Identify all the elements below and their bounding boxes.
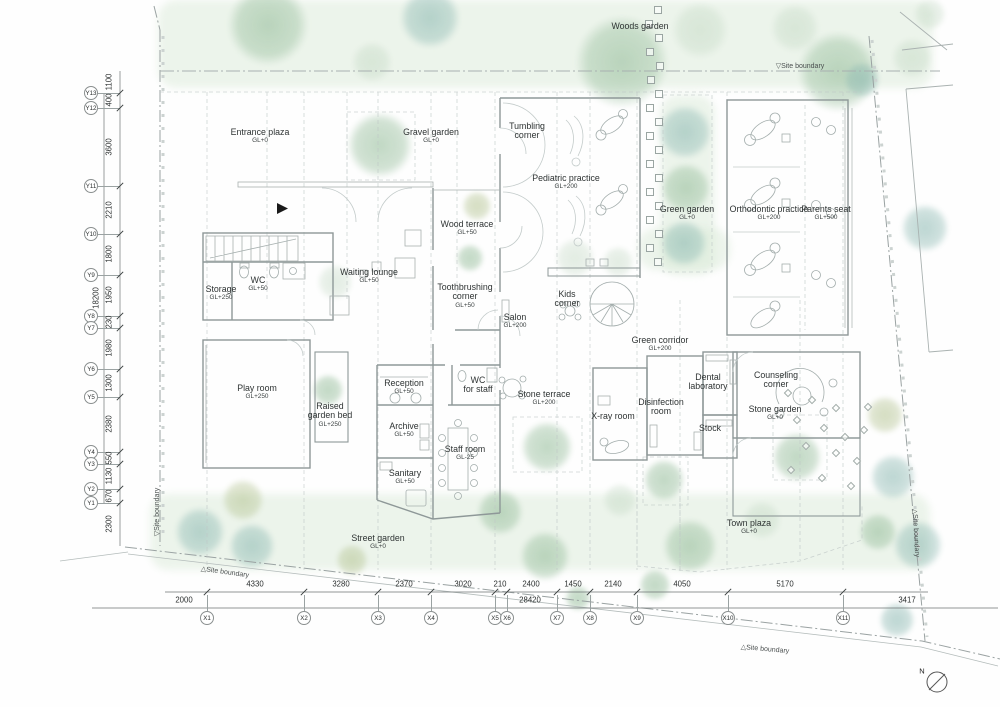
stepping-stone [646, 244, 654, 252]
room-gl-level: GL+0 [660, 214, 714, 223]
grid-bubble-y12: Y12 [84, 101, 98, 115]
room-name: Orthodontic practice [730, 205, 809, 214]
room-label-archive: ArchiveGL+50 [389, 422, 418, 440]
room-label-disinfection-room: Disinfectionroom [638, 398, 683, 417]
grid-leader [495, 595, 496, 611]
grid-leader [378, 595, 379, 611]
room-gl-level: GL+0 [231, 137, 290, 146]
room-name: Reception [384, 379, 424, 388]
x-dimension: 1450 [564, 580, 581, 589]
grid-bubble-y2: Y2 [84, 482, 98, 496]
grid-leader [98, 234, 120, 235]
grid-leader [304, 595, 305, 611]
room-name: Storage [206, 285, 237, 294]
room-name: Staff room [445, 445, 485, 454]
grid-leader [557, 595, 558, 611]
x-dimension-total: 2000 [175, 596, 192, 605]
room-label-green-corridor: Green corridorGL+200 [632, 336, 689, 354]
y-dimension: 670 [105, 489, 114, 502]
stepping-stone [655, 34, 663, 42]
x-dimension-total: 28420 [519, 596, 541, 605]
floor-plan: Woods gardenEntrance plazaGL+0Gravel gar… [0, 0, 1000, 707]
room-name: Green corridor [632, 336, 689, 345]
room-label-wood-terrace: Wood terraceGL+50 [441, 220, 494, 238]
room-label-play-room: Play roomGL+250 [237, 384, 277, 402]
room-name: Salon [504, 313, 527, 322]
dashed-grid [160, 92, 862, 572]
stepping-stone [646, 48, 654, 56]
room-name: room [638, 407, 683, 416]
north-arrow-icon [927, 672, 947, 692]
room-label-salon: SalonGL+200 [504, 313, 527, 331]
room-name: Pediatric practice [532, 174, 599, 183]
room-label-woods-garden: Woods garden [611, 22, 668, 31]
room-label-gravel-garden: Gravel gardenGL+0 [403, 128, 459, 146]
x-dimension: 4330 [246, 580, 263, 589]
room-gl-level: GL+500 [801, 214, 850, 223]
spiral-stair [590, 282, 634, 326]
room-name: Street garden [351, 534, 404, 543]
room-gl-level: GL+0 [351, 543, 404, 552]
grid-leader [843, 595, 844, 611]
stepping-stone [655, 146, 663, 154]
y-dimension: 2300 [105, 515, 114, 532]
stepping-stone [656, 62, 664, 70]
grid-leader [637, 595, 638, 611]
grid-bubble-x4: X4 [424, 611, 438, 625]
grid-leader [98, 108, 120, 109]
room-gl-level: GL+200 [632, 345, 689, 354]
room-name: Stone garden [749, 405, 802, 414]
stepping-stone [655, 174, 663, 182]
room-gl-level: GL+0 [727, 528, 771, 537]
room-gl-level: GL+50 [340, 277, 398, 286]
room-gl-level: GL+200 [730, 214, 809, 223]
room-label-staff-room: Staff roomGL-25 [445, 445, 485, 463]
grid-bubble-y3: Y3 [84, 457, 98, 471]
grid-bubble-x8: X8 [583, 611, 597, 625]
grid-bubble-y7: Y7 [84, 321, 98, 335]
room-name: Stone terrace [518, 390, 571, 399]
plan-linework [0, 0, 1000, 707]
grid-bubble-x2: X2 [297, 611, 311, 625]
room-gl-level: GL+50 [389, 478, 421, 487]
room-name: corner [754, 380, 798, 389]
room-label-toothbrushing-corner: ToothbrushingcornerGL+50 [437, 283, 492, 310]
room-gl-level: GL+200 [504, 322, 527, 331]
stepping-stone [654, 6, 662, 14]
room-gl-level: GL+250 [308, 421, 353, 430]
north-label: N [919, 667, 924, 676]
y-dimension: 1300 [105, 374, 114, 391]
stepping-stone [646, 216, 654, 224]
x-dimension-total: 3417 [898, 596, 915, 605]
x-dimension: 3280 [332, 580, 349, 589]
room-label-orthodontic-practice: Orthodontic practiceGL+200 [730, 205, 809, 223]
room-name: corner [509, 131, 545, 140]
grid-leader [728, 595, 729, 611]
room-gl-level: GL+50 [389, 431, 418, 440]
room-name: Entrance plaza [231, 128, 290, 137]
y-dimension: 550 [105, 451, 114, 464]
stepping-stone [646, 188, 654, 196]
room-gl-level: GL+50 [248, 285, 267, 294]
parents-stools [812, 118, 836, 288]
room-label-counseling-corner: Counselingcorner [754, 371, 798, 390]
room-name: Stock [699, 424, 721, 433]
grid-leader [98, 503, 120, 504]
room-name: Woods garden [611, 22, 668, 31]
room-label-x-ray-room: X-ray room [591, 412, 635, 421]
room-gl-level: GL+250 [206, 294, 237, 303]
y-dimension: 400 [105, 93, 114, 106]
x-dimension: 3020 [454, 580, 471, 589]
grid-leader [431, 595, 432, 611]
y-dimension: 3600 [105, 138, 114, 155]
room-label-reception: ReceptionGL+50 [384, 379, 424, 397]
room-label-wc: WCGL+50 [248, 276, 267, 294]
room-label-street-garden: Street gardenGL+0 [351, 534, 404, 552]
room-name: corner [437, 292, 492, 301]
room-gl-level: GL+0 [403, 137, 459, 146]
x-dimension: 5170 [776, 580, 793, 589]
room-label-town-plaza: Town plazaGL+0 [727, 519, 771, 537]
y-dimension: 1130 [105, 468, 114, 485]
grid-bubble-x11: X11 [836, 611, 850, 625]
stepping-stone [647, 76, 655, 84]
room-label-storage: StorageGL+250 [206, 285, 237, 303]
stepping-stone [655, 118, 663, 126]
room-label-tumbling-corner: Tumblingcorner [509, 122, 545, 141]
grid-bubble-y6: Y6 [84, 362, 98, 376]
x-dimension: 210 [493, 580, 506, 589]
y-dimension: 230 [105, 315, 114, 328]
room-label-stock: Stock [699, 424, 721, 433]
grid-bubble-y1: Y1 [84, 496, 98, 510]
room-gl-level: GL+50 [437, 302, 492, 311]
grid-bubble-x1: X1 [200, 611, 214, 625]
y-dimension: 1950 [105, 286, 114, 303]
entrance-arrow-icon [277, 203, 288, 214]
room-label-pediatric-practice: Pediatric practiceGL+200 [532, 174, 599, 192]
grid-leader [98, 369, 120, 370]
room-name: Play room [237, 384, 277, 393]
x-dimension: 4050 [673, 580, 690, 589]
room-name: Sanitary [389, 469, 421, 478]
room-label-wc-for-staff: WCfor staff [463, 376, 492, 395]
room-label-raised-garden-bed: Raisedgarden bedGL+250 [308, 402, 353, 429]
y-dimension: 1800 [105, 245, 114, 262]
grid-bubble-x9: X9 [630, 611, 644, 625]
grid-bubble-y10: Y10 [84, 227, 98, 241]
room-name: Green garden [660, 205, 714, 214]
room-name: WC [248, 276, 267, 285]
site-boundary-top: ▽Site boundary [776, 62, 825, 70]
room-name: Gravel garden [403, 128, 459, 137]
room-name: Waiting lounge [340, 268, 398, 277]
room-label-sanitary: SanitaryGL+50 [389, 469, 421, 487]
room-name: Archive [389, 422, 418, 431]
room-name: X-ray room [591, 412, 635, 421]
room-name: Parents seat [801, 205, 850, 214]
room-label-stone-garden: Stone gardenGL+0 [749, 405, 802, 423]
grid-bubble-x3: X3 [371, 611, 385, 625]
room-name: laboratory [688, 382, 727, 391]
room-label-stone-terrace: Stone terraceGL+200 [518, 390, 571, 408]
room-label-kids-corner: Kidscorner [555, 290, 580, 309]
y-dimension: 2380 [105, 415, 114, 432]
grid-bubble-y5: Y5 [84, 390, 98, 404]
grid-leader [590, 595, 591, 611]
y-dimension: 1980 [105, 339, 114, 356]
room-label-parents-seat: Parents seatGL+500 [801, 205, 850, 223]
grid-leader [98, 186, 120, 187]
grid-bubble-y9: Y9 [84, 268, 98, 282]
room-gl-level: GL+200 [518, 399, 571, 408]
room-gl-level: GL+0 [749, 414, 802, 423]
stepping-stone [646, 104, 654, 112]
x-dimension: 2370 [395, 580, 412, 589]
grid-bubble-y13: Y13 [84, 86, 98, 100]
room-gl-level: GL+250 [237, 393, 277, 402]
room-gl-level: GL-25 [445, 454, 485, 463]
light-structure [206, 108, 852, 506]
room-gl-level: GL+50 [384, 388, 424, 397]
room-label-green-garden: Green gardenGL+0 [660, 205, 714, 223]
room-label-waiting-lounge: Waiting loungeGL+50 [340, 268, 398, 286]
grid-bubble-x10: X10 [721, 611, 735, 625]
stepping-stone [655, 90, 663, 98]
stepping-stone [646, 132, 654, 140]
stepping-stone [654, 258, 662, 266]
x-dimension: 2140 [604, 580, 621, 589]
room-label-dental-laboratory: Dentallaboratory [688, 373, 727, 392]
room-name: garden bed [308, 411, 353, 420]
stepping-stone [655, 230, 663, 238]
grid-leader [98, 397, 120, 398]
y-dimension: 2210 [105, 201, 114, 218]
grid-bubble-x7: X7 [550, 611, 564, 625]
grid-leader [507, 595, 508, 611]
site-boundary-left: ▽Site boundary [153, 488, 161, 537]
room-gl-level: GL+200 [532, 183, 599, 192]
x-dimension: 2400 [522, 580, 539, 589]
grid-leader [207, 595, 208, 611]
grid-bubble-y11: Y11 [84, 179, 98, 193]
room-name: for staff [463, 385, 492, 394]
room-label-entrance-plaza: Entrance plazaGL+0 [231, 128, 290, 146]
room-name: corner [555, 299, 580, 308]
y-dimension: 1100 [105, 74, 114, 91]
stepping-stone [646, 160, 654, 168]
room-gl-level: GL+50 [441, 229, 494, 238]
grid-leader [98, 275, 120, 276]
room-name: Wood terrace [441, 220, 494, 229]
pediatric-chairs [596, 110, 628, 216]
grid-bubble-x6: X6 [500, 611, 514, 625]
room-name: Town plaza [727, 519, 771, 528]
building-walls [203, 98, 860, 519]
y-dimension-overall: 18200 [92, 287, 101, 309]
